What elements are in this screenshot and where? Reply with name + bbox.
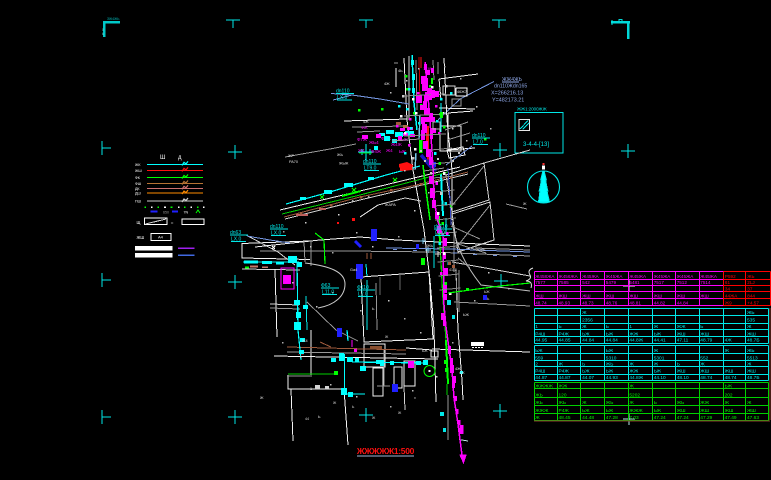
svg-text:ЖШ: ЖШ	[135, 169, 142, 173]
svg-text:48.10: 48.10	[677, 375, 689, 381]
svg-text:ЖЬ: ЖЬ	[747, 310, 755, 316]
svg-text:ЖШ: ЖШ	[654, 293, 662, 298]
svg-text:P4Ш: P4Ш	[535, 369, 545, 375]
svg-text:Ж9: Ж9	[725, 301, 732, 306]
svg-text:44.84: 44.84	[677, 300, 689, 305]
svg-text:46Ж7: 46Ж7	[457, 90, 467, 94]
svg-text:48.81: 48.81	[629, 300, 641, 305]
svg-text:Ж: Ж	[654, 362, 659, 368]
svg-text:ЖAPA: ЖAPA	[385, 203, 396, 207]
svg-text:=: =	[171, 220, 174, 225]
svg-text:5479: 5479	[606, 280, 617, 285]
svg-text:ЖШ: ЖШ	[606, 293, 614, 298]
svg-text:Ж: Ж	[629, 400, 634, 406]
svg-text:ЖШ: ЖШ	[700, 369, 709, 375]
svg-text:Ж4: Ж4	[302, 339, 308, 343]
svg-text:ЬЖ: ЬЖ	[654, 331, 662, 337]
svg-text:Ж45ЖА: Ж45ЖА	[606, 274, 624, 279]
svg-text:47.24: 47.24	[654, 415, 666, 421]
svg-text:Ж: Ж	[523, 202, 527, 206]
svg-text:ЖЖЖЖЖ1:500: ЖЖЖЖЖ1:500	[356, 446, 415, 456]
svg-text:ЖЖЬ: ЖЖЬ	[476, 248, 486, 252]
svg-text:+4.57: +4.57	[747, 301, 759, 306]
svg-text:ЖЖ1:2000ЖЖ: ЖЖ1:2000ЖЖ	[517, 107, 547, 112]
svg-text:47.11: 47.11	[677, 338, 689, 344]
svg-text:ФЖ: ФЖ	[361, 125, 368, 130]
svg-text:44.10: 44.10	[654, 375, 666, 381]
svg-text:5202: 5202	[629, 392, 640, 398]
svg-text:Ж: Ж	[725, 348, 730, 354]
svg-text:Ж45ЖА: Ж45ЖА	[677, 274, 695, 279]
svg-text:48.93: 48.93	[559, 300, 571, 305]
svg-text:ЖШ: ЖШ	[677, 408, 686, 414]
svg-text:44.41: 44.41	[654, 338, 666, 344]
svg-text:ЬЖ: ЬЖ	[654, 408, 662, 414]
svg-text:542: 542	[582, 280, 590, 285]
svg-text:Ж: Ж	[629, 362, 634, 368]
svg-text:47.49: 47.49	[725, 415, 737, 421]
svg-text:ЖЬ: ЖЬ	[677, 400, 685, 406]
svg-text:ЖЬ: ЖЬ	[427, 244, 434, 248]
svg-text:ЖШ: ЖШ	[677, 293, 685, 298]
svg-text:559: 559	[535, 356, 543, 362]
svg-text:Ж45ЖА: Ж45ЖА	[629, 274, 647, 279]
svg-text:47.29: 47.29	[700, 415, 712, 421]
svg-text:4Ж: 4Ж	[459, 371, 465, 375]
svg-text:535: 535	[747, 318, 755, 324]
svg-text:ЖЬ: ЖЬ	[747, 348, 755, 354]
svg-text:ЬЖ: ЬЖ	[606, 348, 614, 354]
svg-text:Ж45ЖА: Ж45ЖА	[654, 274, 672, 279]
svg-text:Ж: Ж	[747, 400, 752, 406]
svg-text:Ж: Ж	[559, 362, 564, 368]
svg-text:Ж45ЖА: Ж45ЖА	[582, 274, 600, 279]
svg-text:47.24: 47.24	[677, 415, 689, 421]
svg-text:Ь: Ь	[102, 32, 104, 36]
svg-text:ЬЖ: ЬЖ	[582, 331, 590, 337]
svg-text:4Ь: 4Ь	[398, 69, 403, 73]
svg-text:Ж: Ж	[700, 362, 705, 368]
svg-text:ЖЖЖЖ: ЖЖЖЖ	[535, 384, 553, 390]
svg-text:ЖЬ: ЖЬ	[606, 362, 614, 368]
svg-text:2: 2	[535, 362, 538, 368]
svg-text:P4Ш: P4Ш	[535, 331, 545, 337]
svg-text:ЖШ: ЖШ	[747, 331, 756, 337]
svg-text:ДШ: ДШ	[135, 192, 141, 196]
svg-text:Ж: Ж	[747, 324, 752, 330]
svg-text:5481: 5481	[629, 280, 640, 285]
svg-text:Ж: Ж	[629, 384, 634, 390]
svg-text:Ж456ЖА: Ж456ЖА	[559, 274, 579, 279]
svg-text:ЖЖ: ЖЖ	[629, 369, 638, 375]
svg-text:Ж: Ж	[747, 362, 752, 368]
svg-text:ЖШ: ЖШ	[629, 293, 637, 298]
svg-text:P592: P592	[725, 274, 736, 279]
svg-text:ЖЬ: ЖЬ	[337, 153, 344, 157]
svg-text:ЬЖ: ЬЖ	[725, 384, 733, 390]
svg-text:44ЖА: 44ЖА	[725, 294, 738, 299]
svg-text:P4Ж: P4Ж	[559, 331, 570, 337]
svg-text:ЖЬ: ЖЬ	[606, 400, 614, 406]
svg-text:ЖЬ: ЖЬ	[535, 392, 543, 398]
svg-text:48.74: 48.74	[725, 375, 737, 381]
svg-text:ЖШ: ЖШ	[747, 369, 756, 375]
svg-text:48.45: 48.45	[559, 415, 571, 421]
svg-text:48.7Б: 48.7Б	[747, 375, 759, 381]
svg-text:Ш: Ш	[160, 155, 166, 161]
svg-text:ЬЖ: ЬЖ	[606, 369, 614, 375]
svg-text:dn110Жdn165: dn110Жdn165	[494, 84, 527, 90]
svg-text:7517: 7517	[654, 280, 665, 285]
svg-text:44: 44	[305, 417, 309, 421]
svg-text:44.48: 44.48	[582, 415, 594, 421]
svg-text:7.03: 7.03	[629, 415, 639, 421]
svg-text:ЬЖ: ЬЖ	[654, 369, 662, 375]
svg-text:ЖШ: ЖШ	[700, 293, 708, 298]
svg-text:7577: 7577	[535, 280, 546, 285]
svg-text:1: 1	[535, 324, 538, 330]
svg-text:ЖP: ЖP	[288, 154, 295, 158]
svg-text:ЖЬ: ЖЬ	[535, 400, 543, 406]
svg-text:44.95: 44.95	[535, 338, 547, 344]
svg-text:Ж: Ж	[582, 400, 587, 406]
svg-text:ЖК: ЖК	[135, 163, 141, 167]
svg-text:48.74: 48.74	[700, 375, 712, 381]
svg-text:202: 202	[725, 392, 733, 398]
svg-text:120: 120	[559, 392, 567, 398]
svg-text:4Ж: 4Ж	[363, 120, 369, 124]
svg-text:Ь: Ь	[654, 400, 657, 406]
svg-text:Ж: Ж	[654, 348, 659, 354]
svg-text:Ж458ЖА: Ж458ЖА	[535, 274, 555, 279]
svg-text:ЖШ: ЖШ	[137, 235, 145, 240]
svg-text:ЬЖ: ЬЖ	[582, 408, 590, 414]
svg-text:5301: 5301	[654, 356, 665, 362]
svg-text:Ж: Ж	[582, 324, 587, 330]
svg-text:P4Ж: P4Ж	[559, 408, 570, 414]
svg-text:ЖЬЖ: ЖЬЖ	[339, 162, 349, 166]
svg-text:1: 1	[629, 324, 632, 330]
svg-text:44.8Ж: 44.8Ж	[629, 338, 643, 344]
svg-text:37: 37	[747, 287, 753, 292]
svg-text:ЖШ: ЖШ	[725, 369, 734, 375]
svg-text:7512: 7512	[677, 280, 688, 285]
svg-text:48.79: 48.79	[700, 338, 712, 344]
svg-text:7514: 7514	[700, 280, 711, 285]
svg-text:ЖШ: ЖШ	[535, 293, 543, 298]
svg-text:552: 552	[700, 356, 708, 362]
svg-text:2356: 2356	[582, 318, 593, 324]
svg-text:ЖЖЖ: ЖЖЖ	[629, 408, 643, 414]
svg-text:7N: 7N	[184, 211, 189, 215]
svg-text:Ж: Ж	[582, 310, 587, 316]
svg-text:ЖЬ4: ЖЬ4	[369, 140, 379, 145]
svg-text:Ж4: Ж4	[358, 148, 365, 153]
svg-text:44.84: 44.84	[606, 338, 618, 344]
svg-text:ЖШ: ЖШ	[559, 293, 567, 298]
svg-text:A4: A4	[158, 235, 164, 240]
svg-text:44.82: 44.82	[654, 300, 666, 305]
svg-text:ЗЖ4ЖЬ: ЗЖ4ЖЬ	[107, 17, 120, 21]
svg-text:Ga4: Ga4	[350, 268, 357, 272]
svg-text:61: 61	[725, 280, 731, 285]
svg-text:Щ: Щ	[137, 220, 141, 225]
svg-text:ЖЖ: ЖЖ	[629, 331, 638, 337]
svg-text:Ж: Ж	[725, 400, 730, 406]
svg-text:844: 844	[747, 294, 755, 299]
svg-text:Ж4: Ж4	[386, 148, 393, 153]
svg-text:44.07: 44.07	[582, 375, 594, 381]
svg-text:1: 1	[310, 387, 312, 391]
svg-text:ЖЖ: ЖЖ	[677, 324, 686, 330]
svg-text:4Ж: 4Ж	[725, 338, 733, 344]
svg-text:ПШ: ПШ	[135, 200, 141, 204]
svg-text:ЖШ: ЖШ	[725, 408, 734, 414]
svg-text:48.76: 48.76	[606, 300, 618, 305]
svg-text:ЬЖ: ЬЖ	[582, 369, 590, 375]
svg-text:Ж: Ж	[535, 415, 540, 421]
svg-text:44.8Ж: 44.8Ж	[629, 375, 643, 381]
svg-text:ЬЖ: ЬЖ	[463, 313, 469, 317]
svg-text:44.84: 44.84	[582, 338, 594, 344]
svg-text:ЬЖ: ЬЖ	[606, 408, 614, 414]
svg-text:ЖЖ: ЖЖ	[559, 384, 568, 390]
svg-text:650: 650	[163, 211, 169, 215]
svg-text:ЖШ: ЖШ	[677, 331, 686, 337]
svg-text:ЖЬ: ЖЬ	[559, 400, 567, 406]
svg-text:P4Ж: P4Ж	[559, 369, 570, 375]
svg-text:5513: 5513	[747, 356, 758, 362]
svg-text:44.85: 44.85	[559, 338, 571, 344]
svg-text:47.28: 47.28	[606, 415, 618, 421]
svg-text:Ь: Ь	[582, 362, 585, 368]
svg-text:д: д	[178, 155, 182, 161]
svg-text:ЖШ: ЖШ	[677, 369, 686, 375]
svg-text:ЖЖ: ЖЖ	[700, 400, 709, 406]
svg-text:X=266216.13: X=266216.13	[491, 91, 523, 97]
svg-text:47.63: 47.63	[747, 415, 759, 421]
svg-text:44.93: 44.93	[606, 375, 618, 381]
svg-text:ЬЖ: ЬЖ	[535, 348, 543, 354]
svg-text:44.87: 44.87	[559, 375, 571, 381]
svg-text:Ж: Ж	[654, 324, 659, 330]
svg-text:PA70: PA70	[289, 160, 298, 164]
svg-text:ЖШ: ЖШ	[747, 408, 756, 414]
svg-text:48.7Б: 48.7Б	[747, 338, 759, 344]
svg-text:4118: 4118	[449, 268, 457, 272]
svg-text:3-4-4-[13]: 3-4-4-[13]	[523, 142, 549, 148]
svg-text:Y=482173.21: Y=482173.21	[492, 98, 524, 104]
svg-text:44.87: 44.87	[535, 375, 547, 381]
svg-text:Ж45ЖА: Ж45ЖА	[700, 274, 718, 279]
svg-text:ЖШ: ЖШ	[582, 293, 590, 298]
svg-text:5310: 5310	[606, 356, 617, 362]
svg-text:4Ж: 4Ж	[384, 82, 390, 86]
svg-text:ЖШ: ЖШ	[700, 331, 709, 337]
svg-text:48.73: 48.73	[582, 300, 594, 305]
svg-text:ФШ: ФШ	[135, 182, 141, 186]
svg-text:34: 34	[725, 287, 731, 292]
svg-text:ЖЬ: ЖЬ	[747, 274, 754, 279]
svg-text:ЬЖ: ЬЖ	[484, 290, 490, 294]
svg-text:Ь: Ь	[559, 324, 562, 330]
svg-text:7585: 7585	[559, 280, 570, 285]
svg-text:Ь: Ь	[700, 324, 703, 330]
svg-text:x: x	[414, 396, 416, 400]
svg-text:ЖШ: ЖШ	[700, 408, 709, 414]
svg-text:ЬЖ: ЬЖ	[422, 349, 428, 353]
svg-text:Ь: Ь	[606, 324, 609, 330]
svg-text:48.74: 48.74	[535, 300, 547, 305]
svg-text:2LJ: 2LJ	[747, 280, 754, 285]
svg-text:Ь: Ь	[677, 362, 680, 368]
svg-text:ЬЖ: ЬЖ	[606, 331, 614, 337]
svg-text:ЖЖЖ: ЖЖЖ	[535, 408, 549, 414]
svg-text:Ж: Ж	[260, 396, 264, 400]
